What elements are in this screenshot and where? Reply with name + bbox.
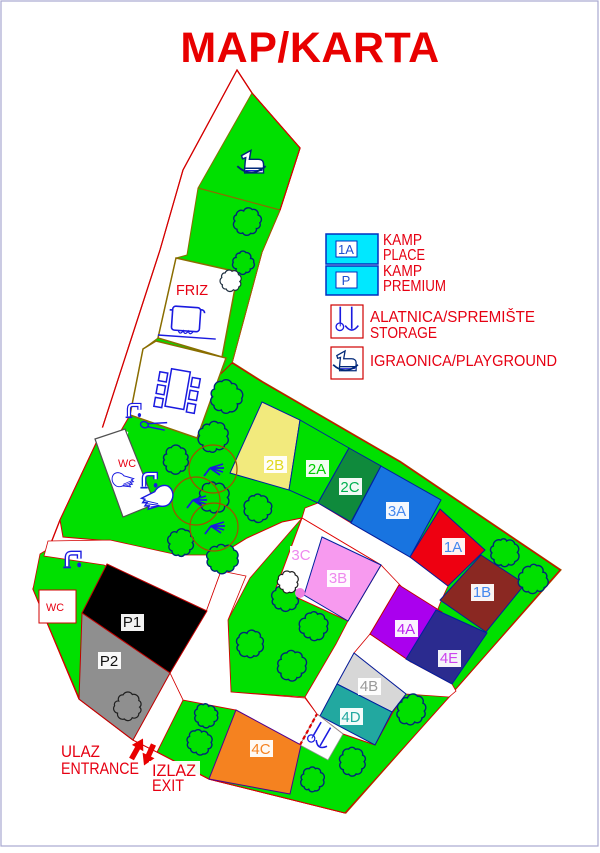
svg-text:WC: WC <box>46 602 64 614</box>
svg-text:STORAGE: STORAGE <box>370 325 437 342</box>
svg-text:P: P <box>342 273 351 288</box>
svg-text:3C: 3C <box>291 547 310 564</box>
svg-text:PREMIUM: PREMIUM <box>383 278 446 295</box>
svg-text:3B: 3B <box>329 570 347 587</box>
svg-text:IGRAONICA/PLAYGROUND: IGRAONICA/PLAYGROUND <box>370 353 557 370</box>
svg-text:P2: P2 <box>100 653 118 670</box>
svg-text:1A: 1A <box>338 242 354 257</box>
svg-text:2C: 2C <box>340 479 359 496</box>
svg-text:2A: 2A <box>308 461 326 478</box>
svg-text:4E: 4E <box>440 650 458 667</box>
svg-text:EXIT: EXIT <box>152 776 184 795</box>
svg-text:MAP/KARTA: MAP/KARTA <box>180 24 439 72</box>
svg-text:4A: 4A <box>397 621 415 638</box>
svg-text:ALATNICA/SPREMIŠTE: ALATNICA/SPREMIŠTE <box>370 309 535 326</box>
svg-text:1B: 1B <box>473 584 491 601</box>
svg-text:ENTRANCE: ENTRANCE <box>61 759 139 778</box>
svg-text:2B: 2B <box>266 457 284 474</box>
svg-text:3A: 3A <box>388 503 406 520</box>
svg-text:P1: P1 <box>123 614 141 631</box>
svg-text:FRIZ: FRIZ <box>176 282 208 299</box>
svg-text:4B: 4B <box>360 678 378 695</box>
svg-text:1A: 1A <box>444 539 462 556</box>
svg-text:WC: WC <box>118 458 136 470</box>
svg-text:PLACE: PLACE <box>383 247 425 264</box>
svg-text:4C: 4C <box>251 741 270 758</box>
svg-text:4D: 4D <box>341 709 360 726</box>
